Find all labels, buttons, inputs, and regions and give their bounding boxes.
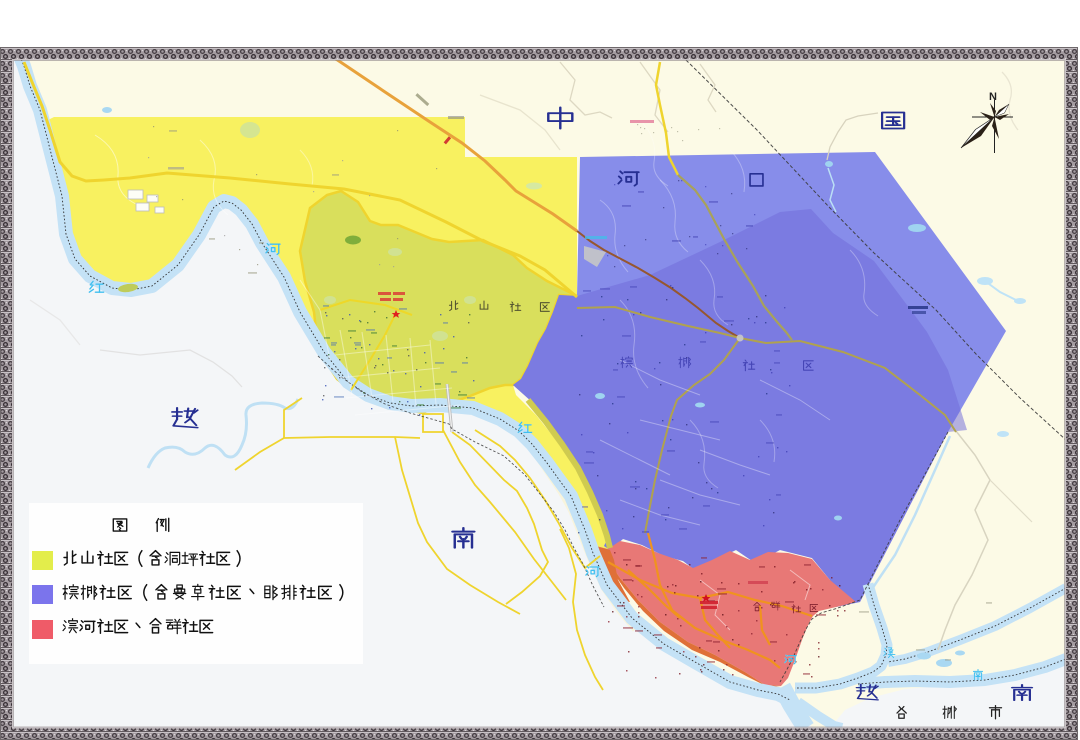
svg-text:N: N <box>989 91 997 103</box>
